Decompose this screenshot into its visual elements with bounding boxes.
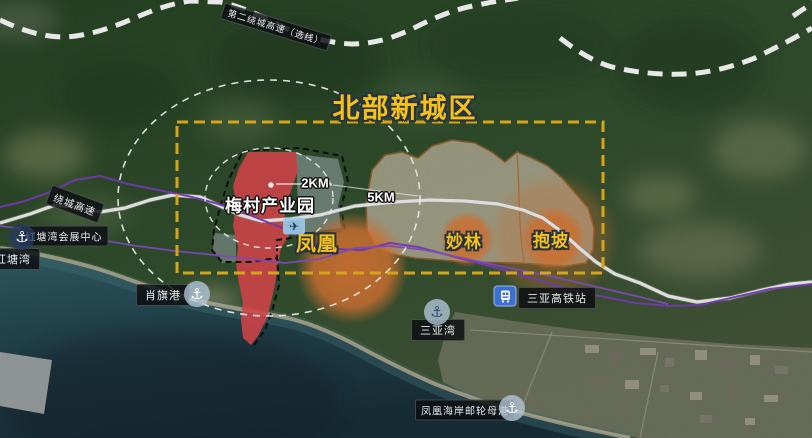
anchor-icon: ⚓ [9,224,35,250]
airport-icon: ✈ [283,218,305,235]
map-canvas [0,0,812,438]
grain-overlay [0,0,812,438]
xiaoqi-port-label: 肖旗港 [136,284,190,306]
anchor-icon: ⚓ [424,299,450,325]
train-glyph [498,289,512,303]
zone-label-baopo: 抱坡 [533,227,569,252]
new-city-title: 北部新城区 [333,87,478,126]
satellite-planning-map: 北部新城区 梅村产业园 2KM 5KM 凤凰 妙林 抱坡 第二绕城高速（选线） … [0,0,812,438]
anchor-icon: ⚓ [184,281,210,307]
hongtangwan-bay-label: 红塘湾 [0,248,40,270]
radius-2km-label: 2KM [301,176,328,191]
zone-label-miaolin: 妙林 [446,228,482,253]
radius-5km-label: 5KM [367,190,394,205]
meicun-park-label: 梅村产业园 [225,192,315,217]
train-station-icon [494,286,517,307]
anchor-icon: ⚓ [499,395,525,421]
sanya-hsr-station-label: 三亚高铁站 [518,287,596,309]
